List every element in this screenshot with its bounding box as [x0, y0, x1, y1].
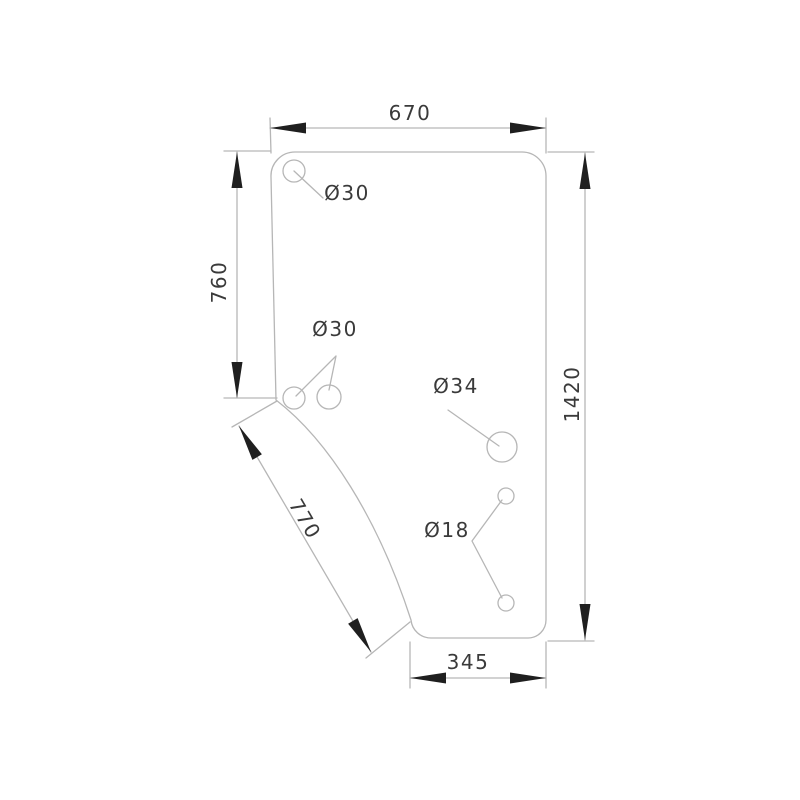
hole-top-corner-label: Ø30 [324, 183, 370, 203]
technical-drawing-page: 670 760 1420 770 345 Ø30 Ø30 Ø34 Ø18 [0, 0, 800, 800]
leader-hole-large [448, 410, 499, 446]
arrow-diag-up [239, 426, 262, 460]
dim-top-width-label: 670 [389, 103, 432, 123]
hole-small-pair-label: Ø18 [424, 520, 470, 540]
leader-hole-top [294, 171, 323, 198]
arrow-diag-down [348, 618, 371, 652]
hole-large [487, 432, 517, 462]
arrow-left-down [232, 362, 243, 398]
arrow-bottom-right [510, 673, 546, 684]
hole-middle-pair-label: Ø30 [312, 319, 358, 339]
panel-outline [271, 152, 546, 638]
hole-large-label: Ø34 [433, 376, 479, 396]
hole-small-bottom [498, 595, 514, 611]
dim-right-height-label: 1420 [562, 366, 582, 423]
arrow-right-up [580, 153, 591, 189]
arrow-top-left [270, 123, 306, 134]
dim-bottom-width-label: 345 [447, 652, 490, 672]
arrow-top-right [510, 123, 546, 134]
leader-hole-middle [296, 356, 336, 396]
dim-left-height-label: 760 [209, 261, 229, 304]
arrow-left-up [232, 152, 243, 188]
ext-lines-left [224, 151, 277, 398]
arrow-bottom-left [410, 673, 446, 684]
leader-hole-small [472, 500, 502, 598]
arrow-right-down [580, 604, 591, 640]
